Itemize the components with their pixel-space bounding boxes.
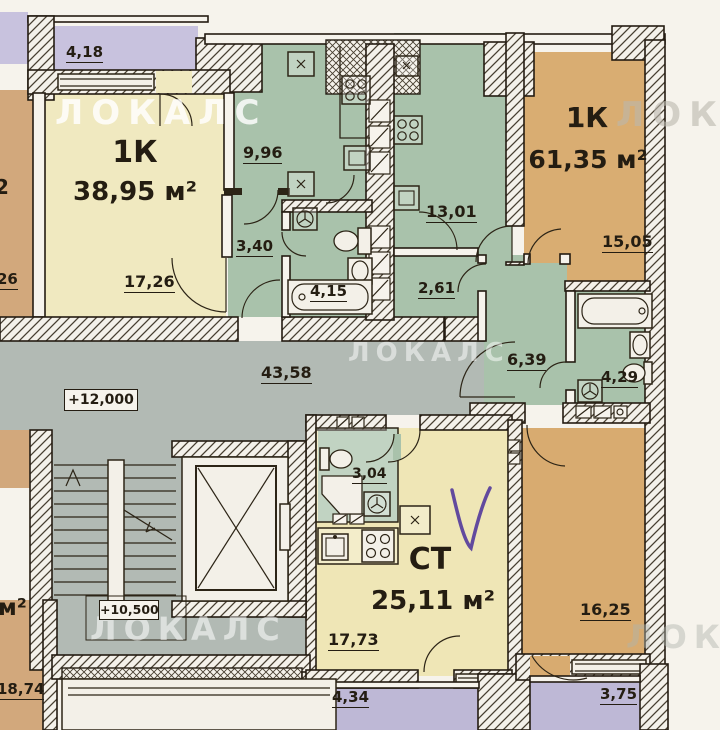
watermark-text: ЛОКАЛС	[616, 95, 720, 135]
label-left-bottom-room: 18,74	[0, 681, 44, 698]
vent-row-apt2	[576, 406, 627, 418]
watermark-text: ЛОКАЛС	[55, 93, 267, 133]
label-apt2-area: 61,35 м²	[522, 146, 654, 174]
label-apt2-entry-hall: 6,39	[507, 351, 546, 369]
stove-icon	[342, 76, 370, 104]
label-apt1-bath: 4,15	[310, 283, 347, 300]
label-balcony-418: 4,18	[66, 44, 103, 61]
label-apt2-kitchen: 13,01	[426, 203, 477, 221]
toilet-icon	[358, 228, 371, 254]
label-studio-room: 17,73	[328, 631, 379, 649]
elevator-door	[280, 504, 290, 550]
watermark-text: ЛОКАЛС	[626, 618, 720, 656]
label-left-bottom-unit: м²	[0, 596, 27, 621]
toilet-icon	[320, 448, 329, 470]
label-apt2-hall: 2,61	[418, 280, 455, 297]
label-apt1-room: 17,26	[124, 273, 175, 291]
elevation-mark-corridor: +12,000	[64, 389, 138, 411]
label-left-top-unit-fragment: 2	[0, 176, 9, 198]
elevation-mark-stairs: +10,500	[99, 600, 159, 620]
label-room-1625: 16,25	[580, 601, 631, 619]
label-apt1-hall: 3,40	[236, 238, 273, 255]
floor-plan: ЛОКАЛС ЛОКАЛС ЛОКАЛС ЛОКАЛС ЛОКАЛС 4,18 …	[0, 0, 720, 730]
label-apt2-bath: 4,29	[601, 369, 638, 386]
label-apt2-room: 15,05	[602, 233, 653, 251]
label-apt1-kitchen: 9,96	[243, 144, 282, 162]
label-balcony-375: 3,75	[600, 686, 637, 703]
stove-icon	[394, 116, 422, 144]
label-apt2-type: 1К	[552, 103, 622, 134]
label-apt1-area: 38,95 м²	[50, 178, 220, 207]
label-studio-type: СТ	[390, 543, 470, 576]
label-left-top-room-fragment: 26	[0, 271, 18, 288]
sink-icon	[344, 146, 370, 170]
sink-icon	[394, 186, 419, 210]
label-studio-bath: 3,04	[352, 467, 387, 482]
label-balcony-434: 4,34	[332, 689, 369, 706]
label-studio-area: 25,11 м²	[364, 587, 502, 616]
label-corridor-area: 43,58	[261, 364, 312, 382]
watermark-text: ЛОКАЛС	[348, 338, 510, 368]
label-apt1-type: 1К	[100, 136, 170, 169]
room-apt2-entry-hall	[484, 255, 572, 405]
